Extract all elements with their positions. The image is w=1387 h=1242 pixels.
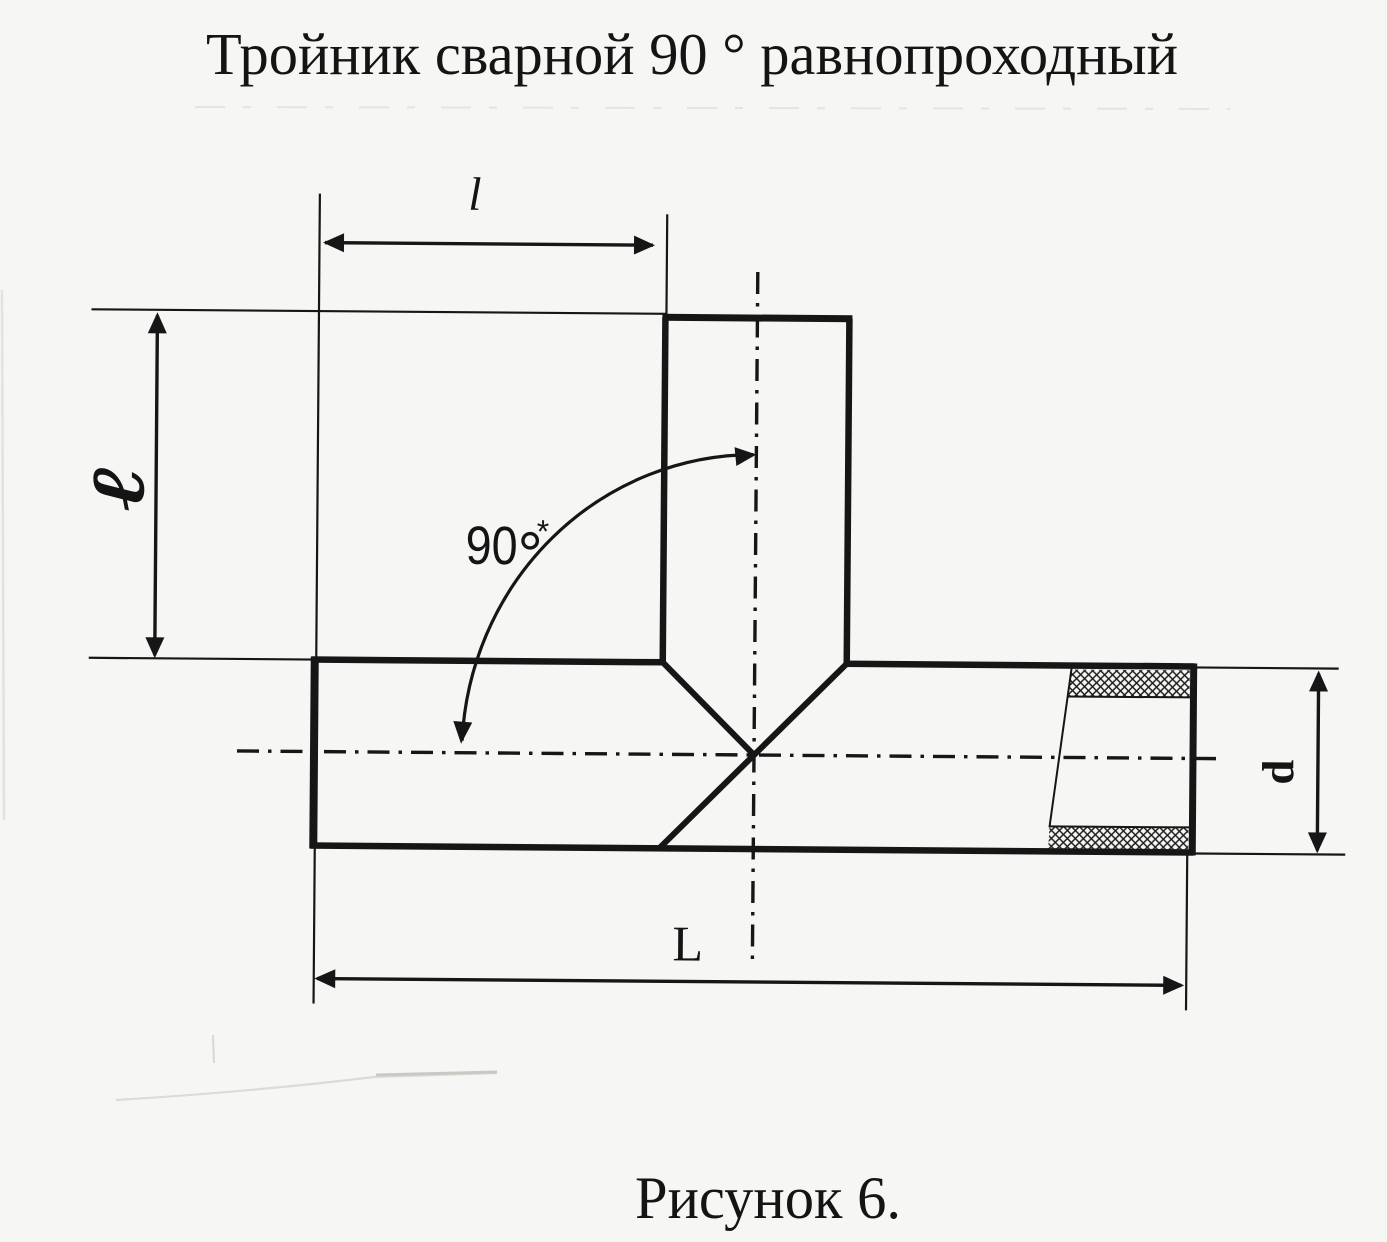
svg-text:90: 90 [465, 516, 517, 576]
svg-text:d: d [1253, 759, 1303, 784]
svg-text:L: L [672, 915, 703, 971]
svg-text:Тройник сварной 90 ° равнопрох: Тройник сварной 90 ° равнопроходный [206, 21, 1178, 87]
svg-text:ℓ: ℓ [78, 468, 159, 511]
svg-text:*: * [537, 513, 550, 549]
svg-text:Рисунок 6.: Рисунок 6. [635, 1165, 901, 1231]
svg-text:l: l [468, 169, 481, 221]
